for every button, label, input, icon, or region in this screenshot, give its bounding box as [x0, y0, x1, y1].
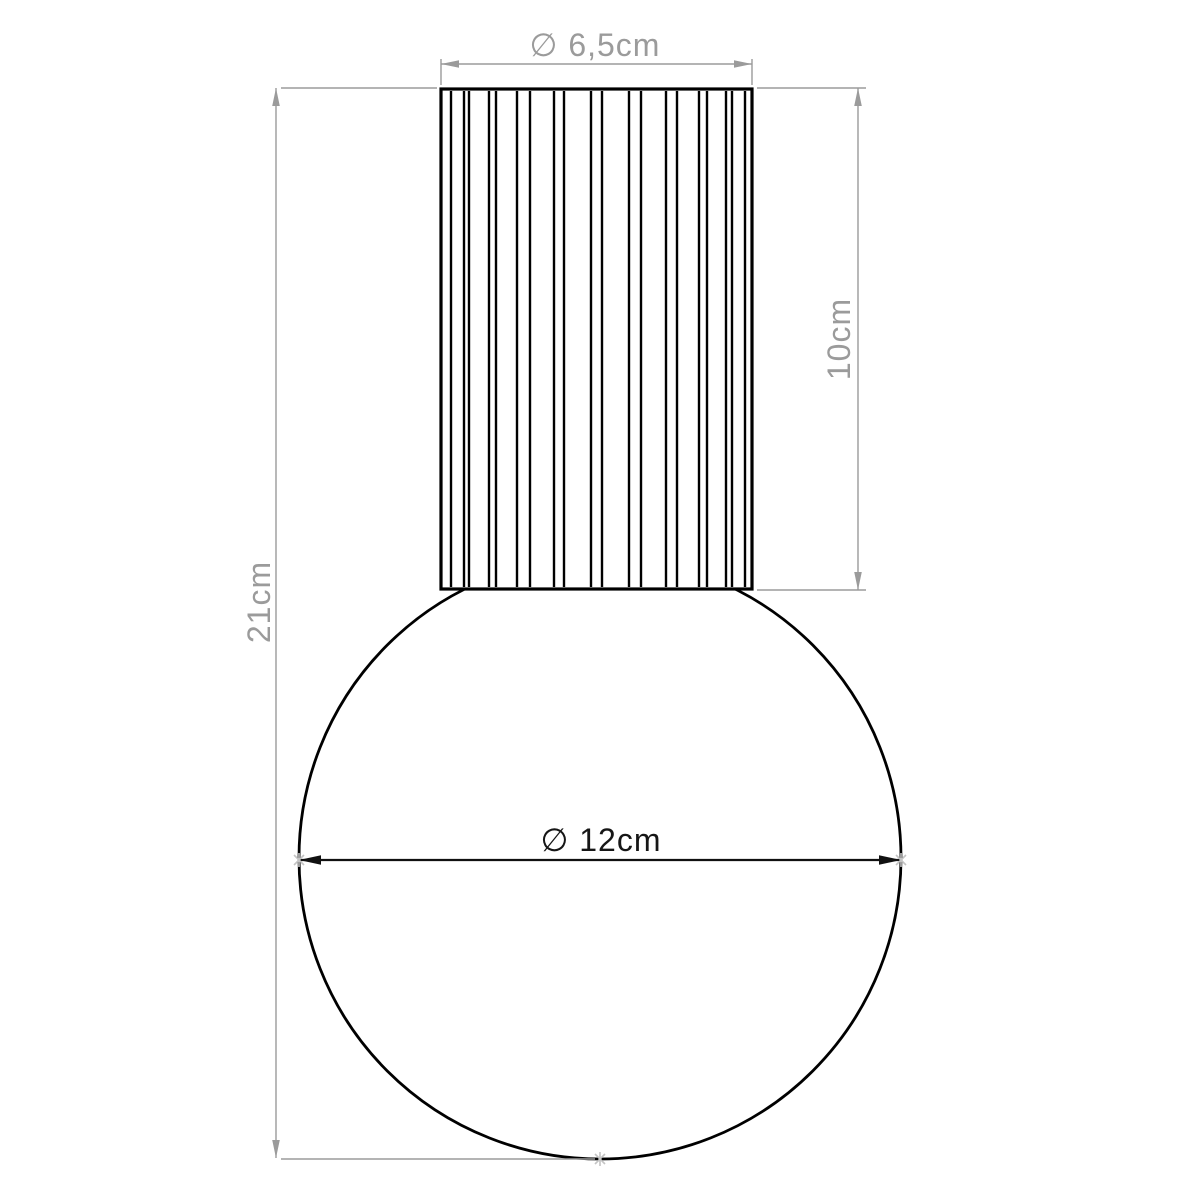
dim-globe-diameter: ∅ 12cm: [299, 822, 901, 865]
drawing-canvas: ∅ 6,5cm 10cm 21cm ∅ 12cm: [0, 0, 1200, 1200]
globe: [299, 557, 901, 1159]
dim-label-shade-height: 10cm: [821, 298, 857, 380]
arrow-down-icon: [272, 1140, 280, 1158]
arrow-left-icon: [441, 60, 459, 68]
lamp-dimension-drawing: ∅ 6,5cm 10cm 21cm ∅ 12cm: [0, 0, 1200, 1200]
dim-label-total-height: 21cm: [241, 561, 277, 643]
globe-outline: [299, 557, 901, 1159]
shade: [441, 89, 752, 589]
endpoint-marks: [294, 853, 906, 1166]
arrow-down-icon: [854, 572, 862, 590]
dim-shade-height: 10cm: [757, 88, 866, 590]
arrow-up-icon: [272, 88, 280, 106]
dim-label-shade-diameter: ∅ 6,5cm: [530, 27, 661, 63]
dim-shade-diameter: ∅ 6,5cm: [441, 27, 752, 85]
dim-label-globe-diameter: ∅ 12cm: [540, 822, 661, 858]
arrow-up-icon: [854, 88, 862, 106]
arrow-right-icon: [734, 60, 752, 68]
shade-outline: [441, 89, 752, 589]
